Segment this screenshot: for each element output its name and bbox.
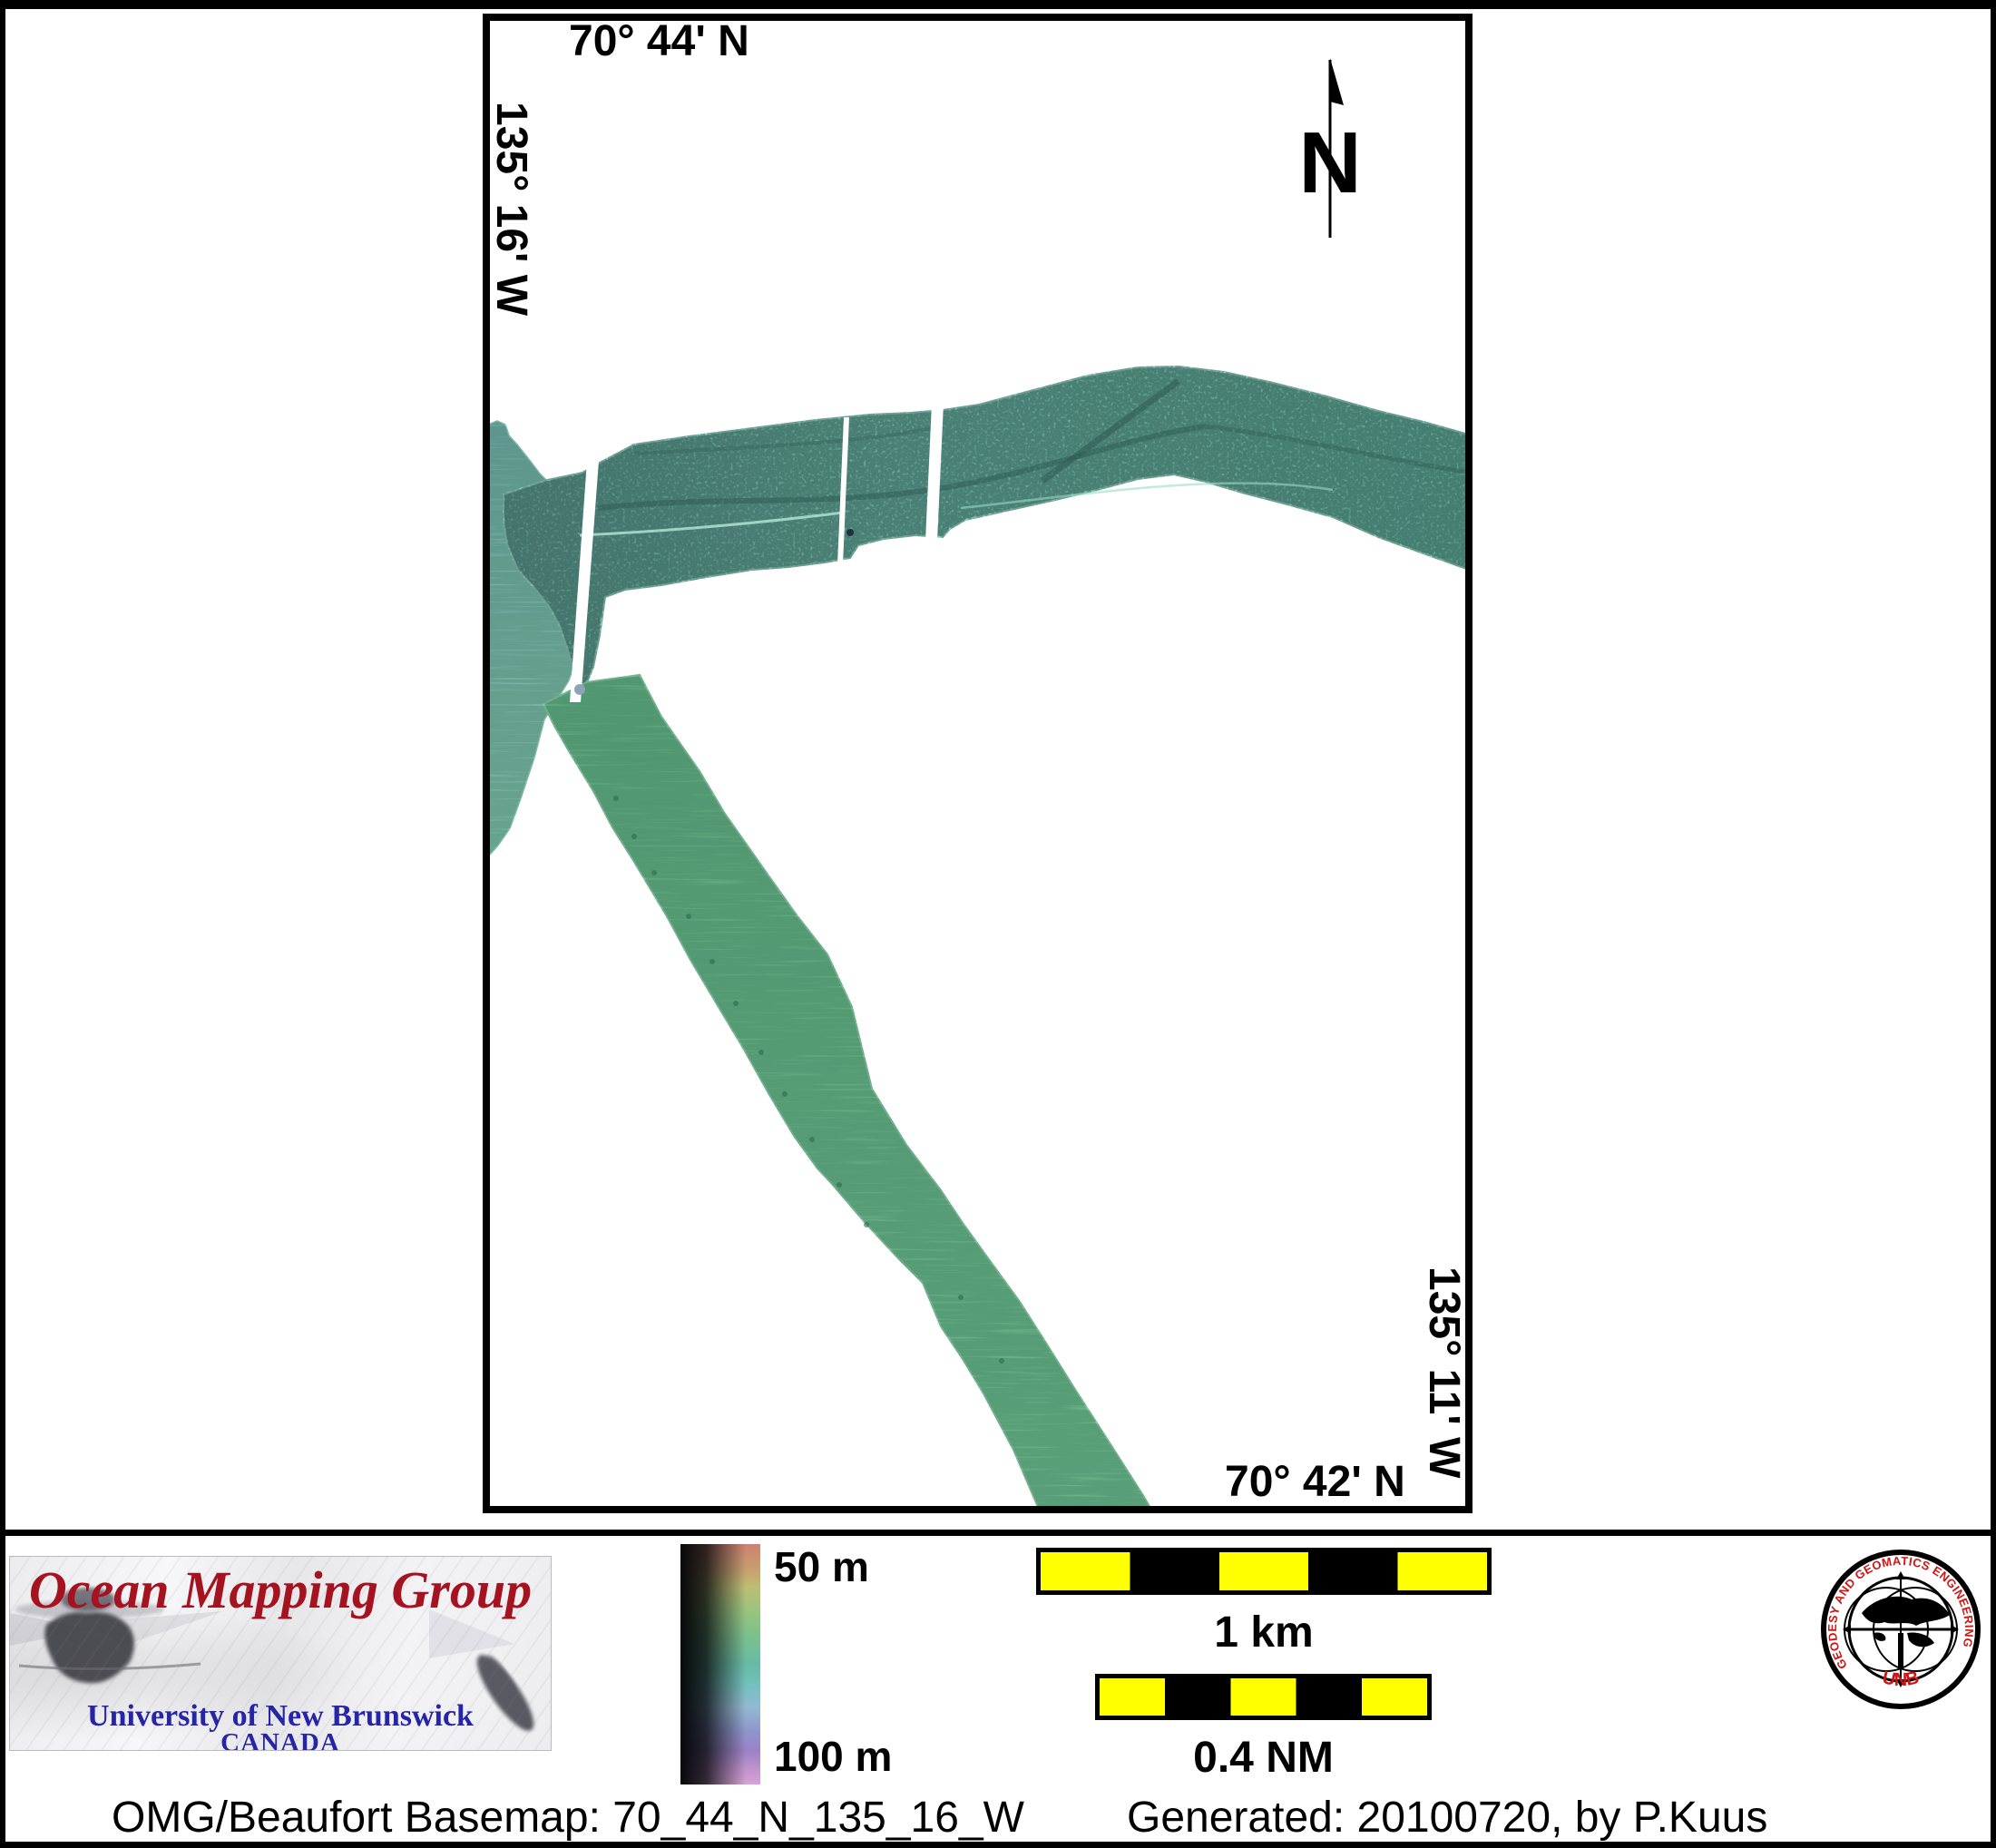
label-latitude-top: 70° 44' N [569,22,749,62]
swath-diagonal [543,675,1153,1506]
depth-color-scale [680,1544,760,1784]
unb-seal: GEODESY AND GEOMATICS ENGINEERING UNB [1821,1550,1981,1709]
footer-separator [0,1530,1996,1536]
scalebar-km-label: 1 km [1036,1608,1492,1657]
caption-basemap: OMG/Beaufort Basemap: 70_44_N_135_16_W [112,1793,1024,1843]
depth-scale-max-label: 100 m [774,1732,892,1781]
scalebar-km [1036,1548,1492,1595]
omg-logo-title: Ocean Mapping Group [10,1560,551,1620]
page-border-left [0,0,5,1848]
north-arrow-pennant [1330,58,1344,105]
scalebar-nm-label: 0.4 NM [1095,1733,1432,1783]
label-longitude-right: 135° 11' W [1424,1266,1463,1478]
scalebar-nm [1095,1674,1432,1720]
seal-unb-text: UNB [1880,1667,1921,1690]
basemap-sheet: 70° 44' N 135° 16' W 135° 11' W 70° 42' … [0,0,1996,1848]
page-border-bottom [0,1842,1996,1848]
helicopter-body [44,1612,134,1683]
caption-generated: Generated: 20100720, by P.Kuus [1127,1793,1767,1843]
tow-cable [19,1664,201,1669]
north-letter: N [1298,114,1361,211]
omg-logo-country: CANADA [10,1728,551,1751]
depth-scale-min-label: 50 m [774,1542,869,1591]
label-latitude-bottom: 70° 42' N [1225,1462,1405,1502]
gap-debris-dot [574,684,585,695]
page-border-top [0,0,1996,9]
omg-logo: Ocean Mapping Group University of New Br… [9,1556,552,1751]
label-longitude-left: 135° 16' W [491,102,531,316]
swath-east-west [504,367,1465,687]
page-border-right [1991,0,1996,1848]
gap-debris-dot-2 [846,529,854,536]
north-arrow: N [1296,49,1377,244]
